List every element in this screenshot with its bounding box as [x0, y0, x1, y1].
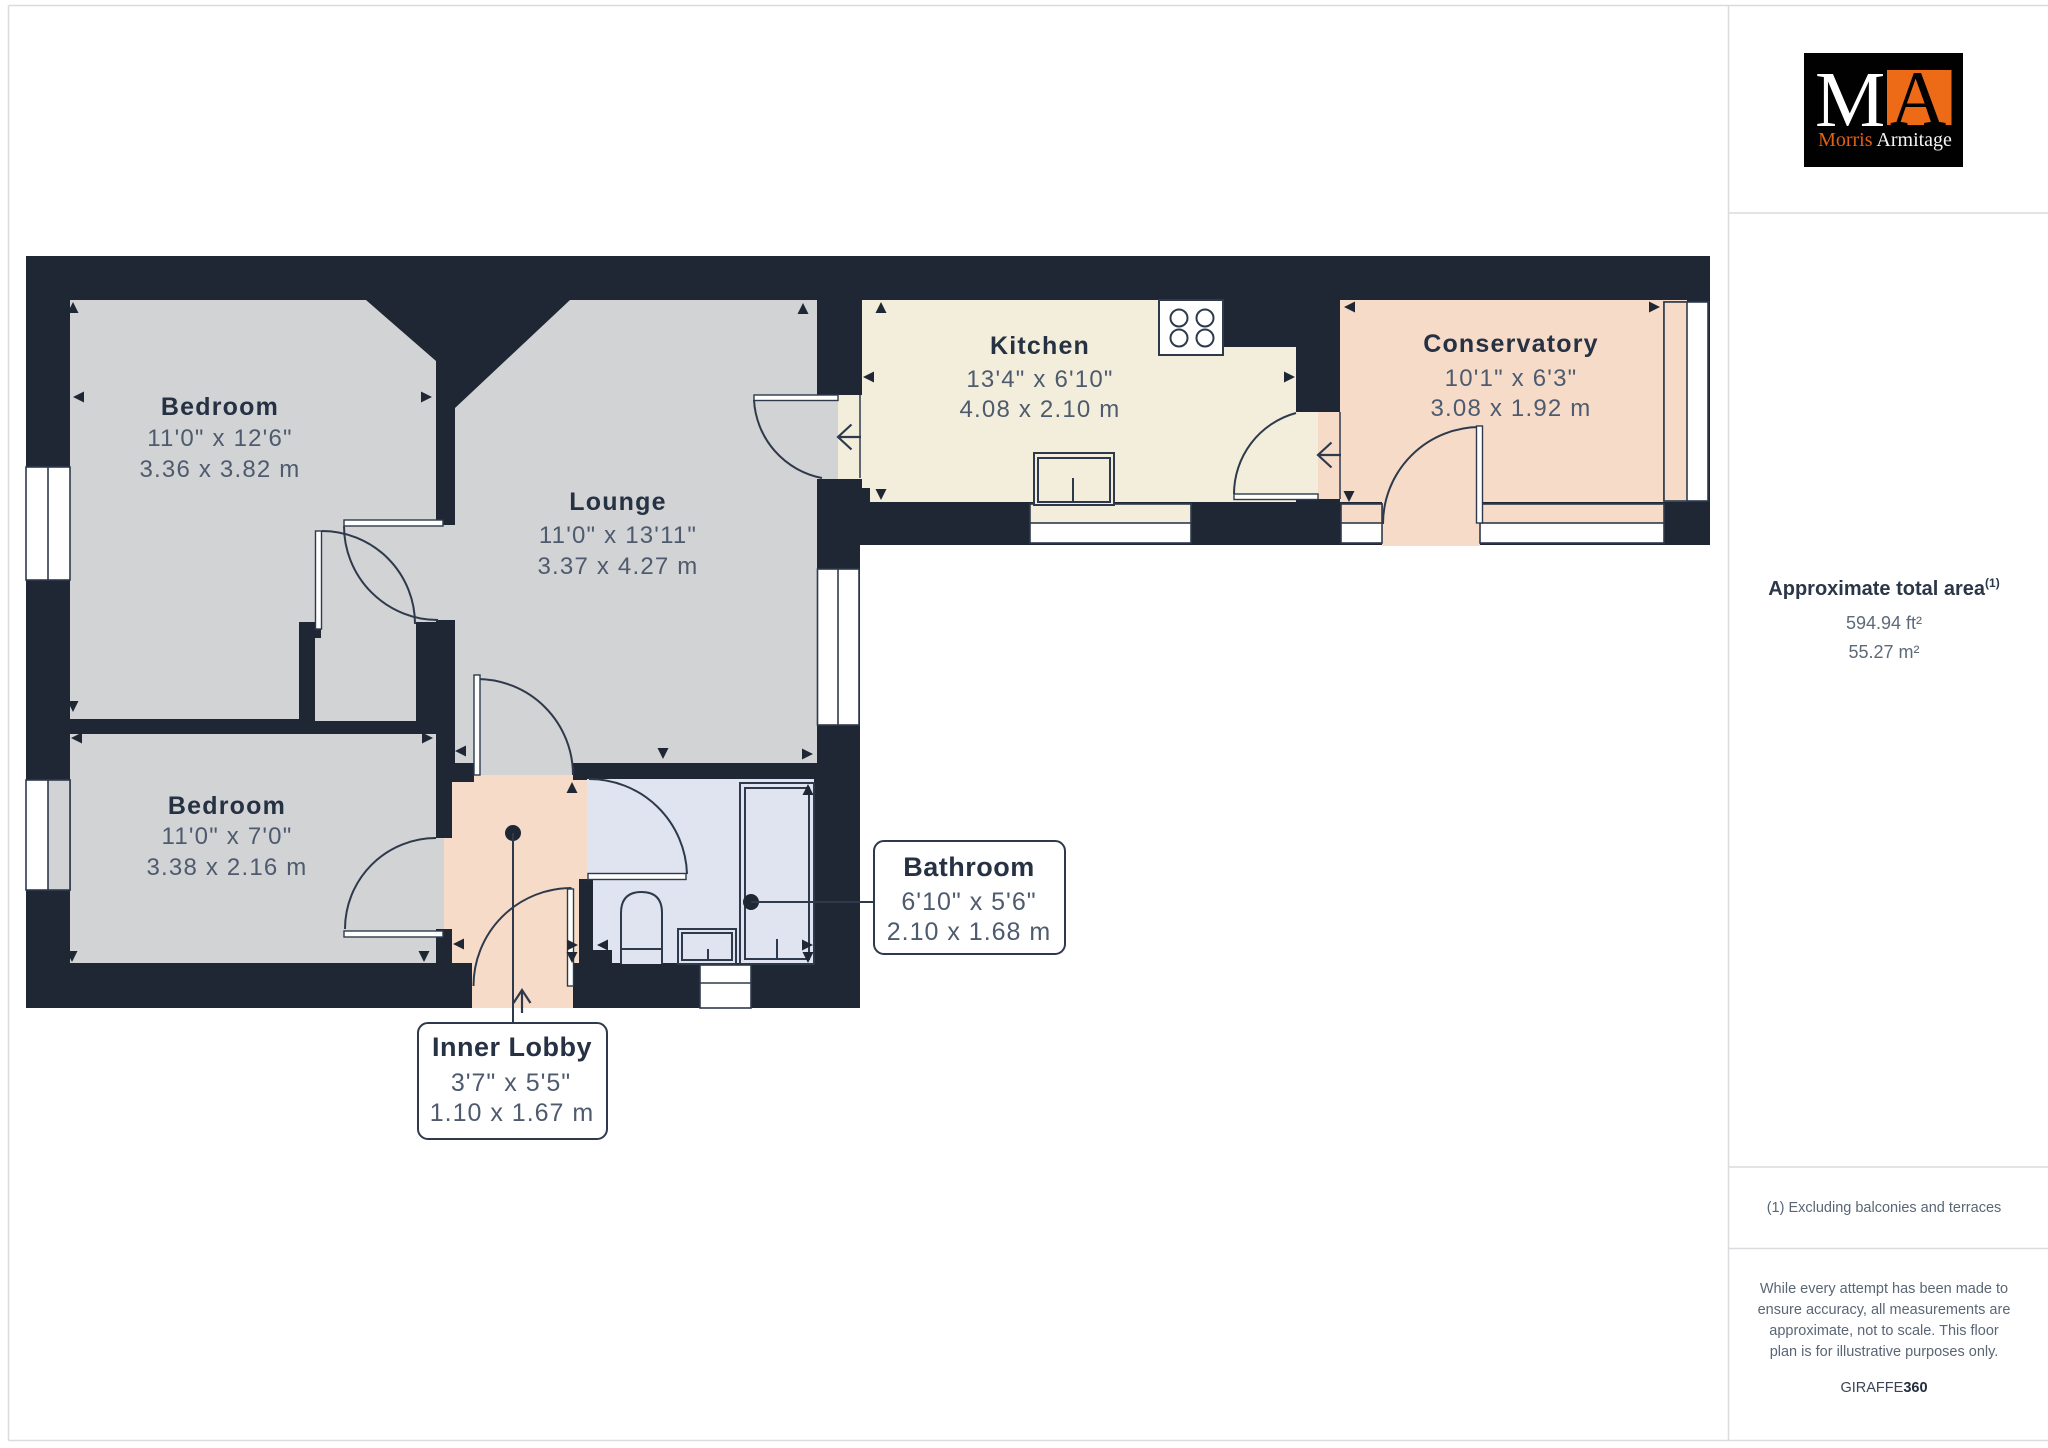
svg-text:Approximate total area(1): Approximate total area(1) — [1768, 576, 1999, 600]
svg-text:55.27 m²: 55.27 m² — [1848, 642, 1919, 662]
svg-text:plan is for illustrative purpo: plan is for illustrative purposes only. — [1770, 1344, 1999, 1360]
svg-text:594.94 ft²: 594.94 ft² — [1846, 613, 1922, 633]
svg-text:6'10" x 5'6": 6'10" x 5'6" — [901, 888, 1036, 916]
svg-text:Lounge: Lounge — [569, 488, 666, 516]
svg-text:While every attempt has been m: While every attempt has been made to — [1760, 1281, 2008, 1297]
svg-text:GIRAFFE360: GIRAFFE360 — [1840, 1380, 1927, 1396]
svg-text:Bedroom: Bedroom — [168, 792, 286, 820]
svg-text:11'0" x 13'11": 11'0" x 13'11" — [539, 522, 697, 549]
svg-text:3.37 x 4.27 m: 3.37 x 4.27 m — [537, 553, 698, 580]
svg-text:3'7" x 5'5": 3'7" x 5'5" — [451, 1069, 571, 1097]
svg-text:(1) Excluding balconies and te: (1) Excluding balconies and terraces — [1767, 1200, 2002, 1216]
svg-text:ensure accuracy, all measureme: ensure accuracy, all measurements are — [1758, 1302, 2011, 1318]
svg-text:3.38 x 2.16 m: 3.38 x 2.16 m — [146, 854, 307, 881]
svg-text:Kitchen: Kitchen — [990, 332, 1090, 360]
svg-text:3.08 x 1.92 m: 3.08 x 1.92 m — [1430, 395, 1591, 422]
svg-text:11'0" x 12'6": 11'0" x 12'6" — [147, 425, 292, 452]
svg-text:13'4" x 6'10": 13'4" x 6'10" — [966, 366, 1113, 393]
svg-text:Bedroom: Bedroom — [161, 393, 279, 421]
svg-text:approximate, not to scale. Thi: approximate, not to scale. This floor — [1769, 1323, 1999, 1339]
svg-text:2.10 x 1.68 m: 2.10 x 1.68 m — [887, 918, 1051, 946]
svg-text:10'1" x 6'3": 10'1" x 6'3" — [1445, 365, 1578, 392]
svg-text:Conservatory: Conservatory — [1423, 330, 1599, 358]
svg-text:Morris Armitage: Morris Armitage — [1818, 129, 1952, 151]
svg-text:Bathroom: Bathroom — [903, 852, 1035, 882]
svg-text:3.36 x 3.82 m: 3.36 x 3.82 m — [139, 456, 300, 483]
svg-text:Inner Lobby: Inner Lobby — [432, 1032, 592, 1062]
svg-text:1.10 x 1.67 m: 1.10 x 1.67 m — [430, 1099, 594, 1127]
svg-text:4.08 x 2.10 m: 4.08 x 2.10 m — [959, 396, 1120, 423]
svg-text:11'0" x 7'0": 11'0" x 7'0" — [162, 823, 293, 850]
